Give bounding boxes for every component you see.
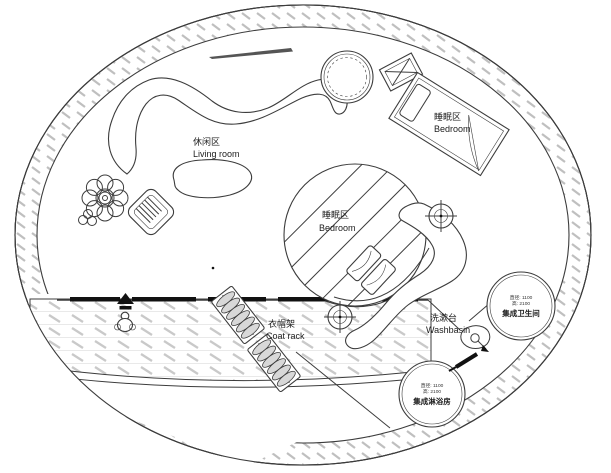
- bedroom-center-label-en: Bedroom: [319, 223, 356, 233]
- coat-rack-label-en: Coat rack: [266, 331, 305, 341]
- round-table: [321, 51, 373, 103]
- washbasin-label-zh: 洗漱台: [430, 312, 457, 323]
- living-room-label-zh: 休闲区: [193, 136, 220, 147]
- bedroom-center-label-zh: 睡眠区: [322, 209, 349, 220]
- shower-pod-diameter: 直径: 1100: [421, 382, 444, 389]
- bathroom-pod-height: 高: 2100: [512, 300, 530, 307]
- shower-pod-name: 集成淋浴房: [412, 396, 451, 406]
- bedroom-main-label-zh: 睡眠区: [434, 111, 461, 122]
- bathroom-pod-diameter: 直径: 1100: [510, 294, 533, 301]
- coat-rack-label-zh: 衣帽架: [268, 318, 295, 329]
- bathroom-pod-name: 集成卫生间: [501, 308, 540, 318]
- washbasin-label-en: Washbasin: [426, 325, 470, 335]
- living-room-label-en: Living room: [193, 149, 240, 159]
- bedroom-main-label-en: Bedroom: [434, 124, 471, 134]
- shower-pod-height: 高: 2100: [423, 388, 441, 395]
- floor-plan-canvas: 休闲区 Living room 睡眠区 Bedroom 睡眠区 Bedroom …: [0, 0, 611, 473]
- reference-dot: [212, 267, 215, 270]
- floor-plan-page: 休闲区 Living room 睡眠区 Bedroom 睡眠区 Bedroom …: [0, 0, 611, 473]
